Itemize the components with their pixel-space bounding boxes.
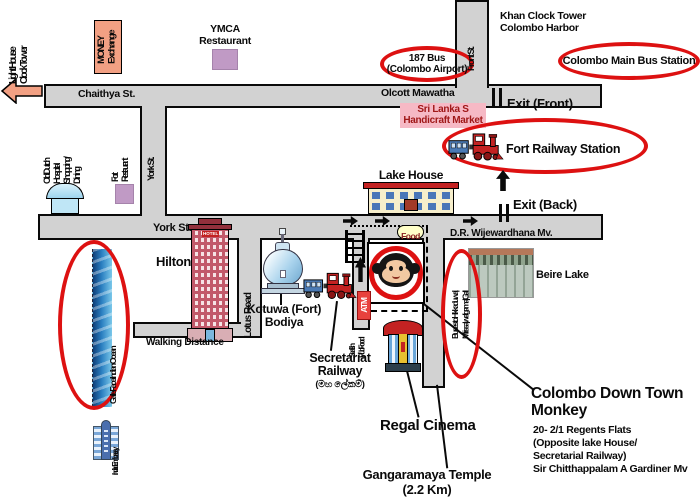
label-dr-wijewardhana: D.R. Wijewardhana Mv.	[450, 228, 552, 239]
exit-back-gate	[506, 204, 509, 222]
label-york-st-vertical: York St.	[147, 131, 158, 181]
fort-restaurant-box	[115, 184, 134, 204]
label-lake-house: Lake House	[368, 169, 454, 182]
atm-tag: ATM	[357, 291, 371, 320]
pointer-regal-cinema	[406, 371, 420, 418]
pointer-secretariat	[330, 301, 338, 351]
monkey-mouth	[392, 273, 400, 279]
label-187-bus: 187 Bus (Colombo Airport)	[382, 53, 472, 75]
railway-track-icon	[345, 230, 365, 263]
windows	[372, 192, 450, 199]
hilton-building: HOTEL	[187, 218, 233, 344]
monkey-eye	[399, 266, 403, 271]
dome	[263, 249, 303, 285]
photo-tree-band	[469, 255, 533, 265]
oval-galle-face	[58, 240, 130, 410]
junction-patch	[458, 84, 486, 90]
label-handicraft-market: Sri Lanka S Handicraft Market	[400, 104, 486, 126]
label-secretariat-railway-sinhala: (මහ ලේකම්)	[294, 380, 386, 391]
label-buses-south: Buses to Hikkaduwa| Mirissa| weligama| G…	[450, 254, 471, 376]
label-ymca: YMCA Restaurant	[190, 24, 260, 48]
label-front-st: Front St.	[466, 13, 476, 71]
destination-title: Colombo Down Town Monkey	[531, 386, 683, 419]
label-gangaramaya: Gangaramaya Temple (2.2 Km)	[352, 468, 502, 497]
label-galle-face: Galle Face/Indian Ocean	[109, 258, 119, 404]
hilton-hotel-sign: HOTEL	[202, 231, 219, 237]
atm-label: ATM	[359, 298, 369, 313]
facade	[191, 229, 229, 330]
food-stall-label: Food	[401, 231, 420, 241]
label-hilton: Hilton	[156, 255, 191, 270]
dome-body	[51, 198, 79, 214]
label-kotuwa-bodiya: Kotuwa (Fort) Bodiya	[238, 303, 330, 330]
walking-route-dashed-horizontal	[371, 310, 428, 312]
label-khan-clock-tower: Khan Clock Tower Colombo Harbor	[500, 11, 586, 35]
money-exchange-label: MONEY Exchange	[97, 31, 118, 64]
monkey-logo	[369, 246, 423, 300]
label-walking-distance: Walking Distance	[146, 337, 224, 348]
label-exit-front: Exit (Front)	[507, 97, 573, 112]
label-york-st-horizontal: York St.	[153, 222, 191, 234]
door	[404, 199, 418, 211]
label-fort-restaurant: Fort Restaurant	[110, 120, 130, 182]
label-secretariat-railway: Secretariat Railway	[294, 352, 386, 378]
walking-route-dashed-vertical	[426, 227, 428, 312]
kotuwa-bodiya-stupa	[261, 228, 305, 298]
exit-front-gate	[499, 88, 502, 106]
marquee	[401, 342, 405, 352]
dome-window	[280, 270, 286, 278]
food-stall-tag: Food	[397, 225, 424, 239]
old-dutch-hospital-building	[46, 183, 84, 214]
junction-patch	[142, 214, 165, 219]
exit-back-gate	[499, 204, 502, 222]
label-main-bus-station: Colombo Main Bus Station	[560, 55, 698, 67]
base	[385, 363, 421, 372]
destination-address: 20- 2/1 Regents Flats (Opposite lake Hou…	[533, 424, 687, 476]
lake-house-building	[366, 182, 456, 214]
money-exchange-box: MONEY Exchange	[94, 20, 122, 74]
label-fort-railway-station: Fort Railway Station	[506, 142, 620, 156]
fort-railway-train-icon	[448, 130, 504, 162]
label-light-house: Light House Clock Tower	[8, 2, 30, 84]
label-chaithya-st: Chaithya St.	[78, 89, 135, 101]
colombo-direction-map: MONEY Exchange HOTEL	[0, 0, 700, 500]
ymca-box	[212, 49, 238, 70]
label-indian-embassy: Indian Embassy	[112, 401, 121, 475]
junction-patch	[239, 238, 260, 243]
label-olcott-mawatha: Olcott Mawatha	[381, 88, 454, 100]
exit-front-gate	[492, 88, 495, 106]
tower-windows	[104, 428, 108, 452]
label-regal-cinema: Regal Cinema	[380, 418, 476, 435]
arrow-up-to-fort-station	[496, 170, 510, 191]
dome-roof	[46, 183, 84, 199]
label-beire-lake: Beire Lake	[536, 269, 589, 281]
label-old-dutch: Old Dutch Hospital Shopping/ Dining	[42, 120, 82, 184]
secretariat-railway-train-icon	[303, 269, 357, 301]
monkey-eye	[389, 266, 393, 271]
label-exit-back: Exit (Back)	[513, 198, 577, 213]
base	[261, 288, 305, 294]
regal-cinema-building	[383, 320, 423, 372]
junction-patch	[142, 105, 165, 110]
